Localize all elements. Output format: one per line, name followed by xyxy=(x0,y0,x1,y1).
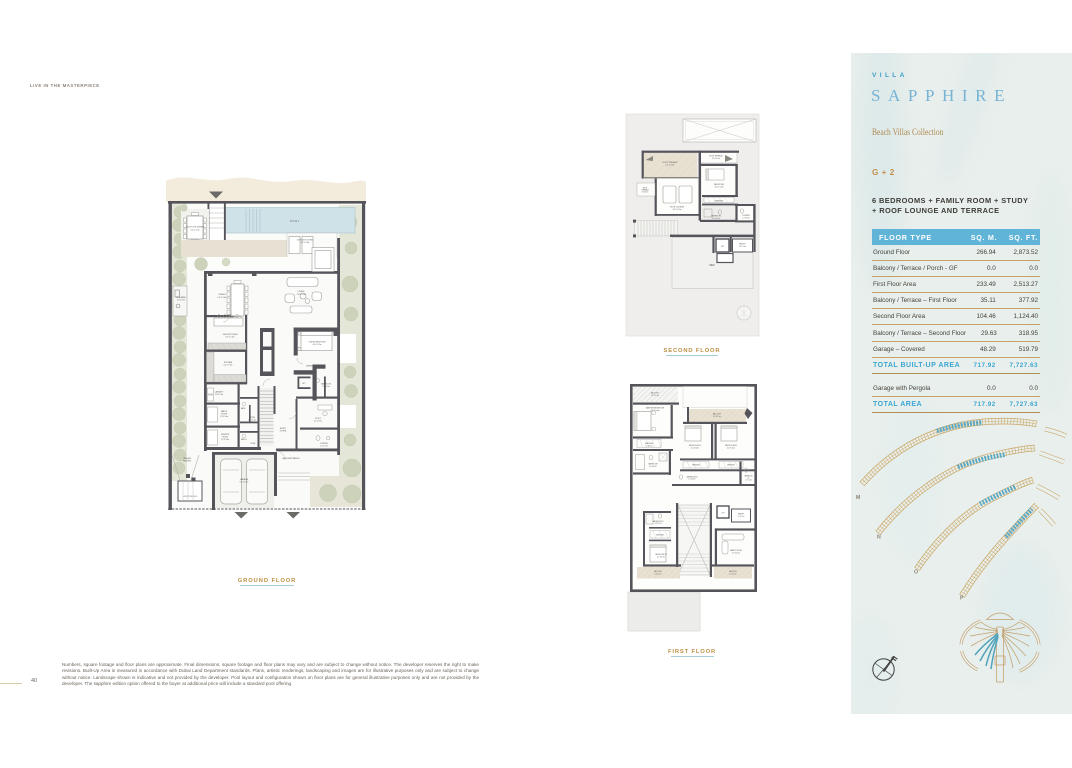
svg-text:DRESSING: DRESSING xyxy=(306,366,316,368)
svg-text:4.1 X 4.0m: 4.1 X 4.0m xyxy=(314,421,323,423)
svg-text:3.9 X 2.0m: 3.9 X 2.0m xyxy=(642,192,650,194)
svg-text:ROOF: ROOF xyxy=(643,188,647,190)
svg-text:4.0 X 4.0m: 4.0 X 4.0m xyxy=(715,187,724,189)
svg-text:SHOW KITCHEN: SHOW KITCHEN xyxy=(223,334,238,336)
svg-text:DRESSING: DRESSING xyxy=(715,201,725,203)
svg-text:POOL: POOL xyxy=(290,219,300,223)
svg-text:BALCONY: BALCONY xyxy=(651,392,660,395)
svg-text:LIVING: LIVING xyxy=(298,291,305,293)
svg-text:4.3 X 1.2m: 4.3 X 1.2m xyxy=(654,573,662,575)
svg-text:3.6 X 3.0m: 3.6 X 3.0m xyxy=(712,218,720,220)
svg-text:4.1 X 4.0m: 4.1 X 4.0m xyxy=(657,556,665,558)
svg-text:ROOF TERRACE: ROOF TERRACE xyxy=(709,155,723,158)
svg-text:POWDER: POWDER xyxy=(320,443,328,445)
svg-text:ROOF TERRACE: ROOF TERRACE xyxy=(663,161,679,164)
svg-text:PUMP: PUMP xyxy=(251,443,257,445)
svg-text:FAMILY ROOM: FAMILY ROOM xyxy=(730,549,742,552)
svg-text:BBQ AREA: BBQ AREA xyxy=(176,296,186,299)
svg-text:2.5 X 2.4m: 2.5 X 2.4m xyxy=(220,416,229,418)
svg-text:4.0 X 4.0m: 4.0 X 4.0m xyxy=(691,448,700,450)
svg-text:2.5 X 1.0m: 2.5 X 1.0m xyxy=(739,246,747,248)
svg-text:DRESSING: DRESSING xyxy=(727,465,736,467)
svg-text:DINING: DINING xyxy=(219,294,226,296)
svg-text:4.1 X 1.2m: 4.1 X 1.2m xyxy=(729,573,737,575)
svg-text:4.2 X 5.5m: 4.2 X 5.5m xyxy=(190,229,200,231)
svg-text:BATHROOM: BATHROOM xyxy=(711,215,721,218)
svg-text:1.7 X 2.5m: 1.7 X 2.5m xyxy=(742,217,750,219)
svg-text:5.2 X 3.0m: 5.2 X 3.0m xyxy=(666,165,675,167)
svg-text:DRESSING: DRESSING xyxy=(692,465,701,467)
svg-text:LAUNDRY: LAUNDRY xyxy=(215,391,224,394)
svg-text:2.4 X 2.7m: 2.4 X 2.7m xyxy=(655,523,663,525)
svg-text:6.2 X 2.6m: 6.2 X 2.6m xyxy=(226,337,235,339)
svg-text:5.0 X 3.6m: 5.0 X 3.6m xyxy=(217,297,227,299)
svg-text:2.3 X 1.5m: 2.3 X 1.5m xyxy=(320,445,328,447)
svg-text:3.2 X 1.6m: 3.2 X 1.6m xyxy=(645,445,653,447)
svg-text:4.0 X 4.1m: 4.0 X 4.1m xyxy=(313,344,322,346)
svg-text:OUTDOOR DINING: OUTDOOR DINING xyxy=(186,227,204,229)
svg-text:LIFT: LIFT xyxy=(302,383,305,385)
svg-text:KITCHEN: KITCHEN xyxy=(224,362,233,364)
svg-text:8.2 X 1.6m: 8.2 X 1.6m xyxy=(713,416,721,418)
svg-text:6.2 X 3.4m: 6.2 X 3.4m xyxy=(224,365,233,367)
svg-text:4.9 X 4.0m: 4.9 X 4.0m xyxy=(651,410,660,412)
svg-text:5.9 X 1.4m: 5.9 X 1.4m xyxy=(651,395,659,397)
svg-text:4.0 X 4.0m: 4.0 X 4.0m xyxy=(727,448,736,450)
svg-text:FOYER: FOYER xyxy=(280,431,287,433)
svg-text:MASTER BEDROOM: MASTER BEDROOM xyxy=(646,407,665,410)
svg-text:M: M xyxy=(856,495,860,501)
svg-text:UTILITY BLOCK: UTILITY BLOCK xyxy=(183,496,198,498)
svg-text:LIFT: LIFT xyxy=(721,246,724,248)
svg-text:7.8 X 5.1m: 7.8 X 5.1m xyxy=(296,294,306,296)
svg-text:GARAGE: GARAGE xyxy=(240,478,249,481)
svg-text:MEP: MEP xyxy=(709,264,715,267)
svg-text:4.0 X 4.0m: 4.0 X 4.0m xyxy=(732,552,740,554)
svg-text:LIFT: LIFT xyxy=(721,513,724,515)
svg-text:P: P xyxy=(960,596,964,602)
svg-text:O: O xyxy=(914,570,918,576)
svg-text:4.5 X 4.1m: 4.5 X 4.1m xyxy=(673,209,682,211)
svg-text:2.7 X 1.6m: 2.7 X 1.6m xyxy=(745,480,751,482)
svg-text:PARKING: PARKING xyxy=(183,460,192,463)
svg-text:DRESSING: DRESSING xyxy=(645,443,654,445)
svg-text:BEDROOM 03: BEDROOM 03 xyxy=(655,554,666,556)
svg-text:3.6 X 3.3m: 3.6 X 3.3m xyxy=(649,466,657,468)
svg-text:6.1 X 6.2m: 6.1 X 6.2m xyxy=(240,482,249,484)
svg-text:GUEST BEDROOM: GUEST BEDROOM xyxy=(309,342,326,344)
svg-text:BATH 2: BATH 2 xyxy=(241,438,247,441)
svg-text:ROOF LOUNGE: ROOF LOUNGE xyxy=(670,207,685,209)
svg-text:2.8 X 2.1m: 2.8 X 2.1m xyxy=(215,394,224,396)
svg-text:OUTDOOR LIVING: OUTDOOR LIVING xyxy=(297,240,314,242)
svg-text:N: N xyxy=(877,535,881,541)
svg-text:5.5 X 4.4m: 5.5 X 4.4m xyxy=(301,242,310,244)
svg-text:DRESSING: DRESSING xyxy=(656,535,665,537)
svg-text:BATHROOM: BATHROOM xyxy=(321,383,331,386)
svg-text:02: 02 xyxy=(748,478,750,480)
svg-text:POWDER: POWDER xyxy=(742,215,750,217)
svg-text:2.0 X 3.9m: 2.0 X 3.9m xyxy=(689,479,697,481)
svg-text:BEDROOM: BEDROOM xyxy=(714,184,724,186)
svg-text:BALCONY: BALCONY xyxy=(713,413,722,416)
svg-text:2.5 X 2.4m: 2.5 X 2.4m xyxy=(221,439,230,441)
svg-text:2.5 X 1.0m: 2.5 X 1.0m xyxy=(738,516,746,518)
svg-text:2.3 X 3.6m: 2.3 X 3.6m xyxy=(322,386,330,388)
svg-text:4.3 X 1.0m: 4.3 X 1.0m xyxy=(712,158,720,160)
svg-text:2.3 X 2.5m: 2.3 X 2.5m xyxy=(177,300,186,302)
